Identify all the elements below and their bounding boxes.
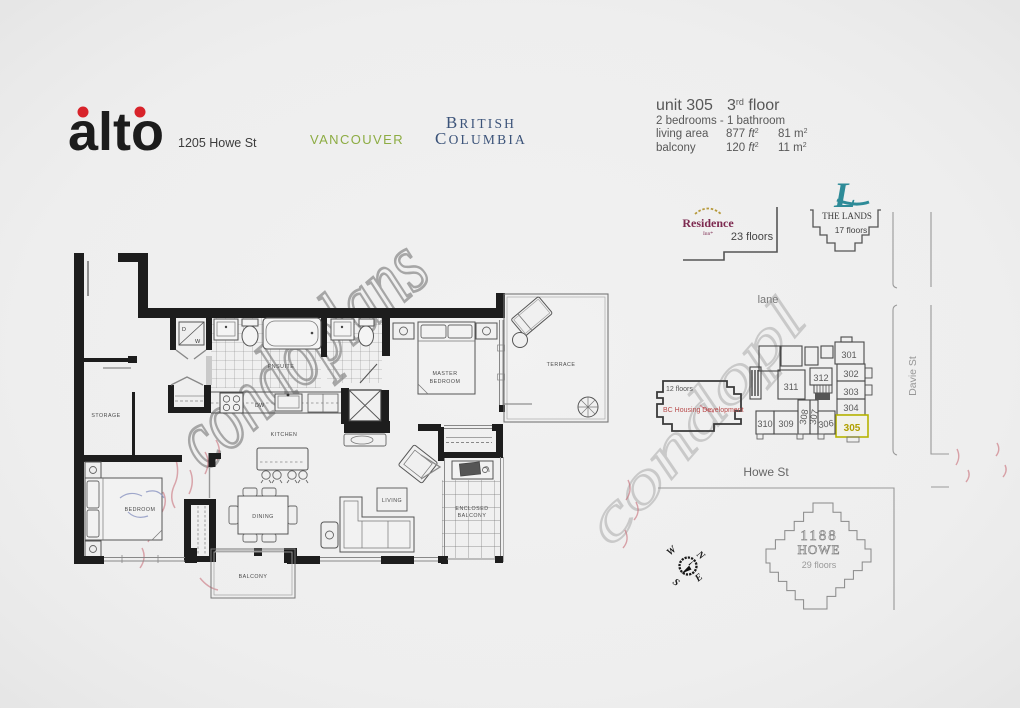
svg-text:BEDROOM: BEDROOM	[125, 507, 156, 513]
svg-text:303: 303	[843, 387, 858, 397]
svg-text:BC Housing Development: BC Housing Development	[663, 407, 744, 414]
svg-text:BEDROOM: BEDROOM	[430, 379, 461, 385]
svg-text:Davie St: Davie St	[907, 356, 919, 396]
svg-text:3rd floor: 3rd floor	[727, 97, 780, 114]
svg-text:81 m2: 81 m2	[778, 128, 808, 140]
svg-text:BALCONY: BALCONY	[458, 513, 487, 519]
svg-text:D: D	[182, 327, 186, 333]
svg-text:L: L	[833, 175, 856, 215]
svg-text:Residence: Residence	[682, 216, 734, 230]
svg-text:310: 310	[757, 419, 772, 429]
svg-text:LIVING: LIVING	[382, 498, 402, 504]
svg-text:balcony: balcony	[656, 142, 696, 154]
svg-text:lane: lane	[758, 294, 779, 306]
svg-text:MASTER: MASTER	[432, 371, 457, 377]
svg-text:ENCLOSED: ENCLOSED	[455, 506, 488, 512]
svg-text:304: 304	[843, 403, 858, 413]
svg-text:120 ft2: 120 ft2	[726, 142, 759, 154]
svg-text:23 floors: 23 floors	[731, 231, 774, 243]
svg-text:309: 309	[778, 419, 793, 429]
svg-text:312: 312	[813, 373, 828, 383]
svg-text:living area: living area	[656, 128, 709, 140]
svg-text:877 ft2: 877 ft2	[726, 128, 759, 140]
svg-text:THE LANDS: THE LANDS	[822, 211, 872, 221]
svg-text:W: W	[195, 339, 201, 345]
svg-text:305: 305	[844, 423, 861, 434]
svg-text:BALCONY: BALCONY	[239, 574, 268, 580]
svg-text:Howe St: Howe St	[743, 465, 789, 479]
svg-text:302: 302	[843, 369, 858, 379]
svg-text:29 floors: 29 floors	[802, 560, 837, 570]
svg-text:TERRACE: TERRACE	[547, 362, 576, 368]
svg-text:Inn*: Inn*	[703, 231, 713, 237]
svg-text:2 bedrooms - 1 bathroom: 2 bedrooms - 1 bathroom	[656, 115, 785, 127]
svg-text:BRITISH: BRITISH	[446, 113, 516, 132]
svg-text:11 m2: 11 m2	[778, 142, 807, 154]
svg-text:DW: DW	[255, 403, 265, 409]
svg-text:unit 305: unit 305	[656, 97, 713, 114]
svg-text:ENSUITE: ENSUITE	[268, 364, 294, 370]
svg-text:KITCHEN: KITCHEN	[271, 432, 298, 438]
svg-text:306: 306	[818, 418, 835, 430]
svg-text:DINING: DINING	[252, 514, 274, 520]
svg-text:301: 301	[841, 350, 856, 360]
svg-text:HOWE: HOWE	[798, 542, 841, 557]
svg-text:COLUMBIA: COLUMBIA	[435, 129, 527, 148]
svg-text:311: 311	[784, 382, 799, 392]
svg-text:17 floors: 17 floors	[835, 225, 868, 235]
svg-text:VANCOUVER: VANCOUVER	[310, 132, 404, 147]
svg-text:12 floors: 12 floors	[666, 386, 693, 393]
svg-text:STORAGE: STORAGE	[91, 413, 120, 419]
svg-text:1205 Howe St: 1205 Howe St	[178, 136, 257, 150]
